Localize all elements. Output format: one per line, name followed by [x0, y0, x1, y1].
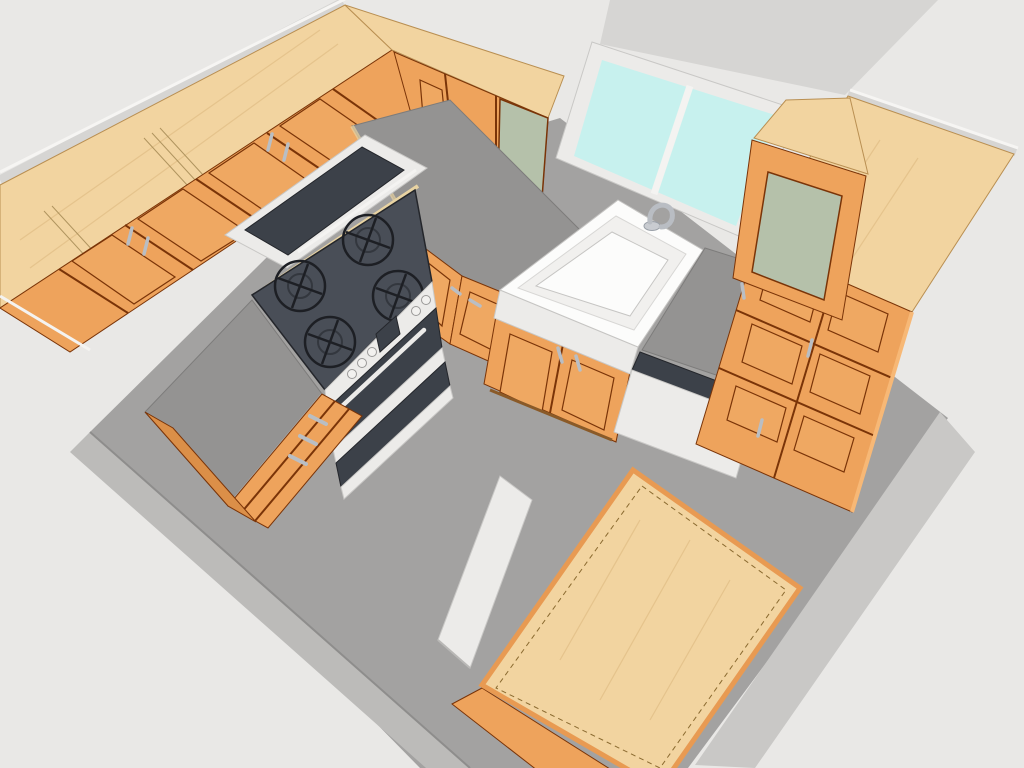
kitchen-3d-viewport[interactable]	[0, 0, 1024, 768]
kitchen-scene[interactable]	[0, 0, 1024, 768]
glass-cabinet-handle	[742, 284, 744, 298]
